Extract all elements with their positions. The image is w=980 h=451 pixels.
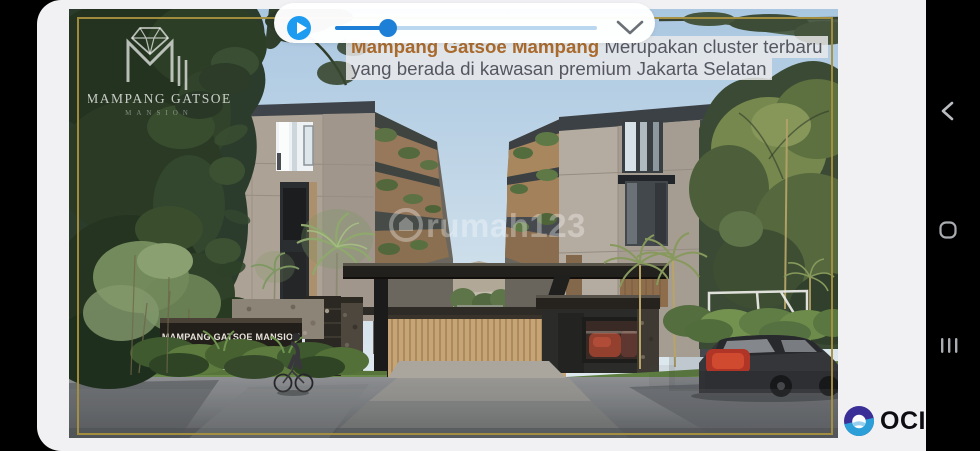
svg-text:MANSION: MANSION xyxy=(125,109,193,117)
svg-text:MAMPANG GATSOE: MAMPANG GATSOE xyxy=(88,91,232,106)
